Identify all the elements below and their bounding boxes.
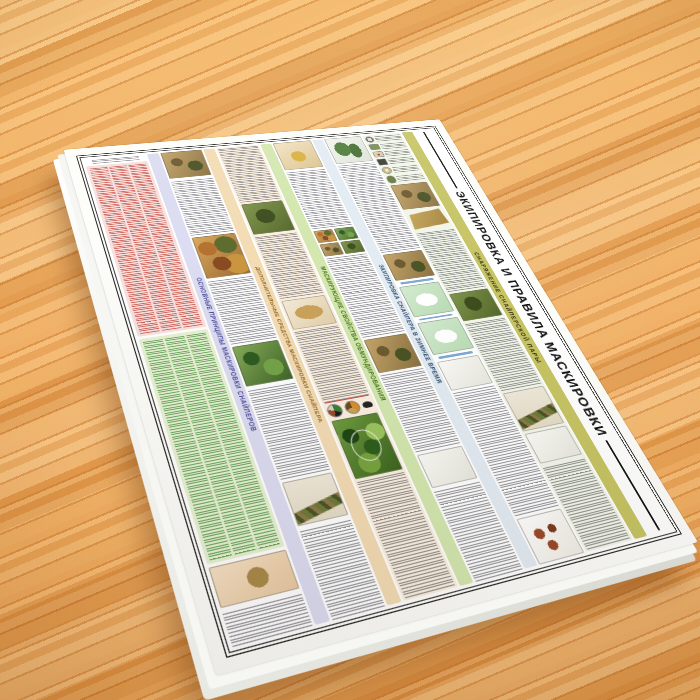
first-aid-icon	[372, 151, 385, 158]
paint-colors-disc	[325, 403, 345, 419]
radio-icon	[376, 158, 389, 165]
pouch-icon	[368, 144, 381, 150]
paint-tones-disc	[343, 400, 363, 416]
poster-board: ОСНОВНЫЕ ПРИНЦИПЫ МАСКИРОВКИ СНАЙПЕРОВ Д…	[64, 119, 698, 675]
paint-stick	[362, 401, 374, 409]
photo-scene: { "scene": { "surface": "wooden table to…	[0, 0, 700, 700]
perspective-scene: ОСНОВНЫЕ ПРИНЦИПЫ МАСКИРОВКИ СНАЙПЕРОВ Д…	[0, 0, 700, 700]
photo-shooting-mat	[404, 207, 452, 230]
camouflage-highlight-circle	[346, 427, 387, 463]
photo-camo-pattern	[160, 150, 211, 179]
photo-helmet-cover	[281, 295, 337, 330]
